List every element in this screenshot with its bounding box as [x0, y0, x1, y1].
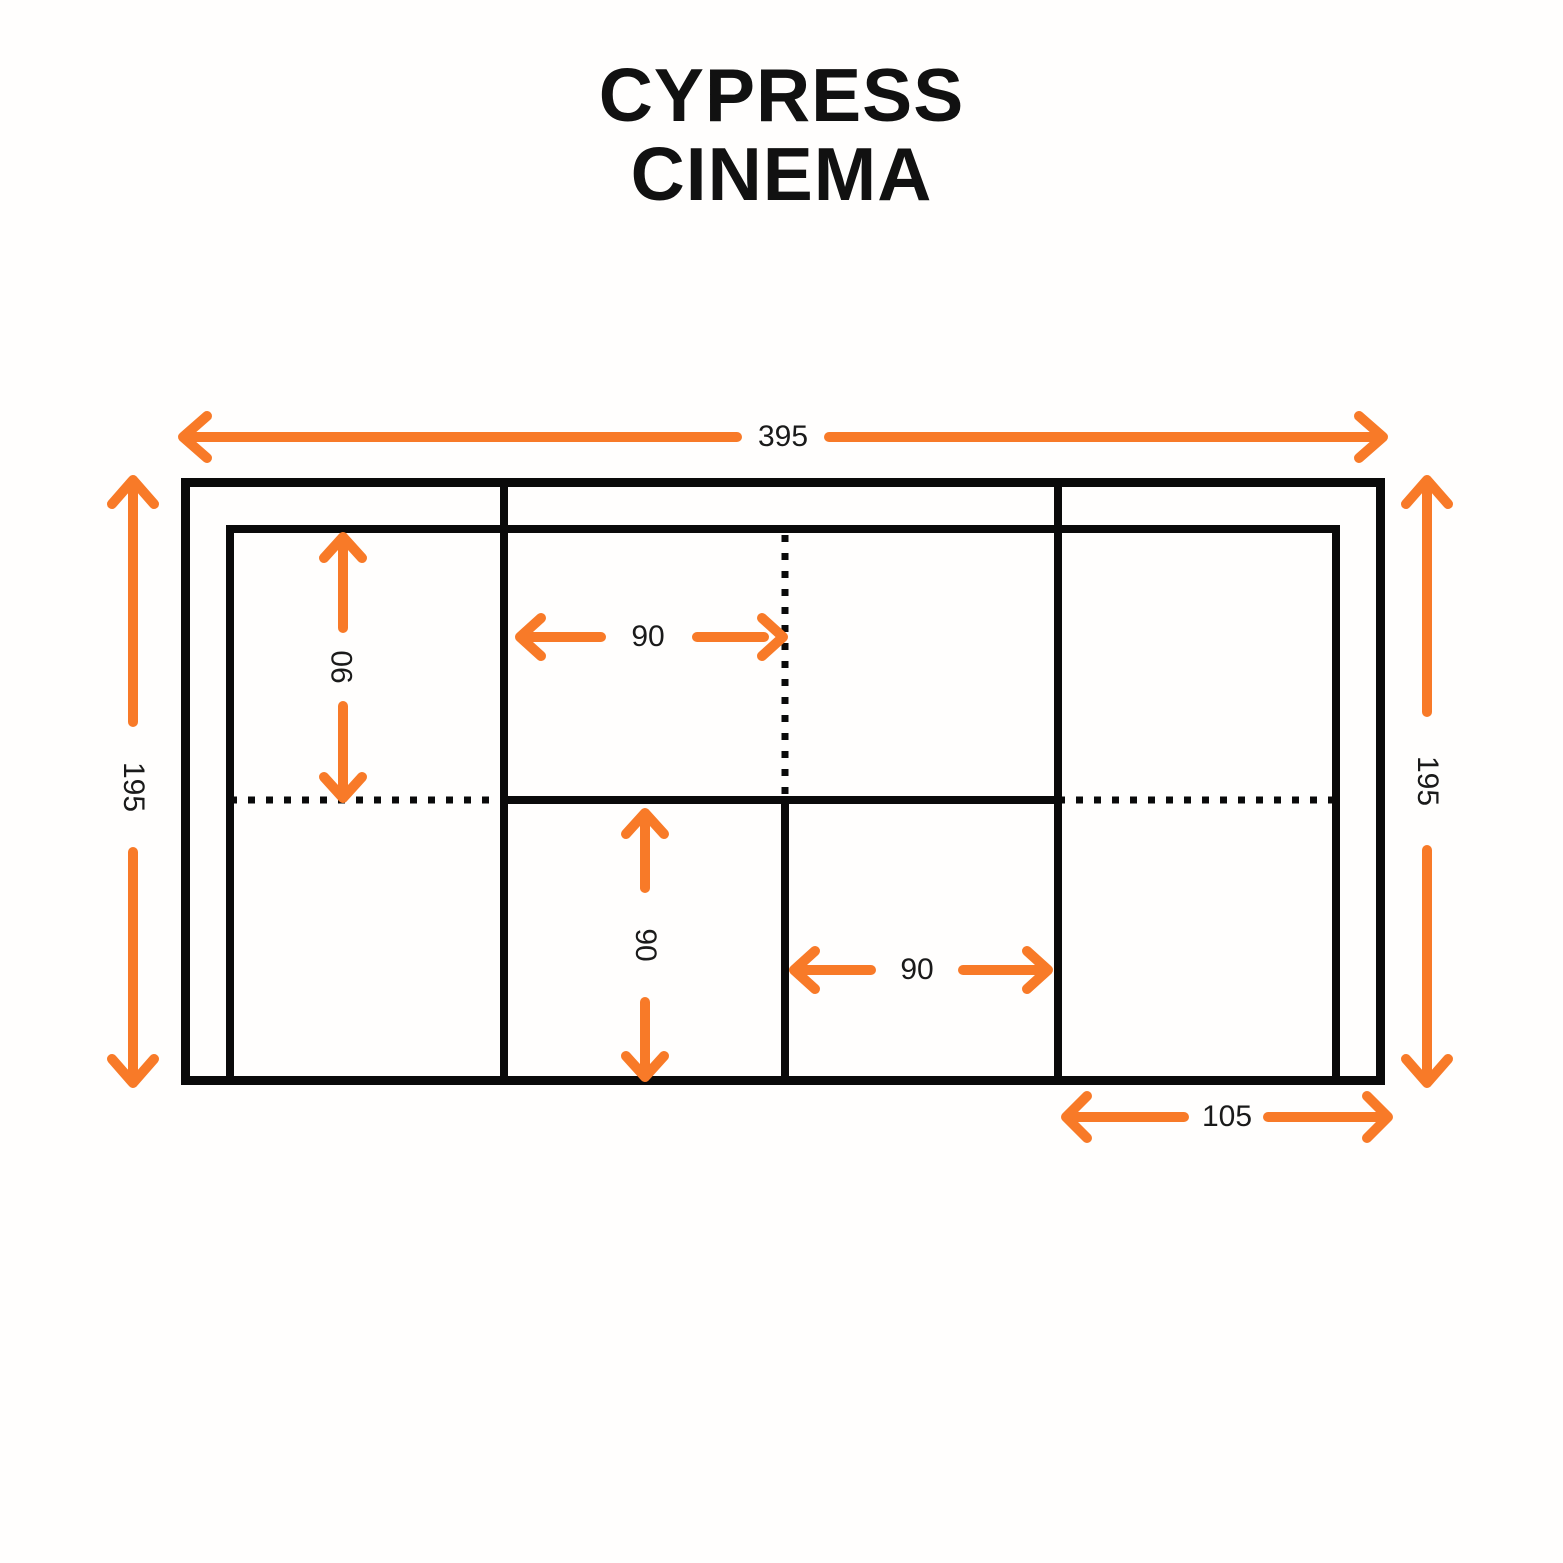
dimension-label-left-seat-depth: 90 [326, 650, 360, 683]
dimension-label-center-seat-depth: 90 [628, 928, 662, 961]
dimension-arrows-group [112, 416, 1448, 1138]
dimension-label-right-seat-width: 90 [900, 953, 933, 987]
dimension-label-center-width: 90 [631, 620, 664, 654]
dimension-label-right-module-width: 105 [1202, 1100, 1252, 1134]
sofa-outline-group [186, 478, 1381, 1085]
dimension-label-depth-left: 195 [116, 762, 150, 812]
dimension-label-overall-width: 395 [758, 420, 808, 454]
sofa-dimension-diagram [0, 0, 1563, 1563]
dimension-label-depth-right: 195 [1410, 756, 1444, 806]
design-canvas: CYPRESS CINEMA [0, 0, 1563, 1563]
